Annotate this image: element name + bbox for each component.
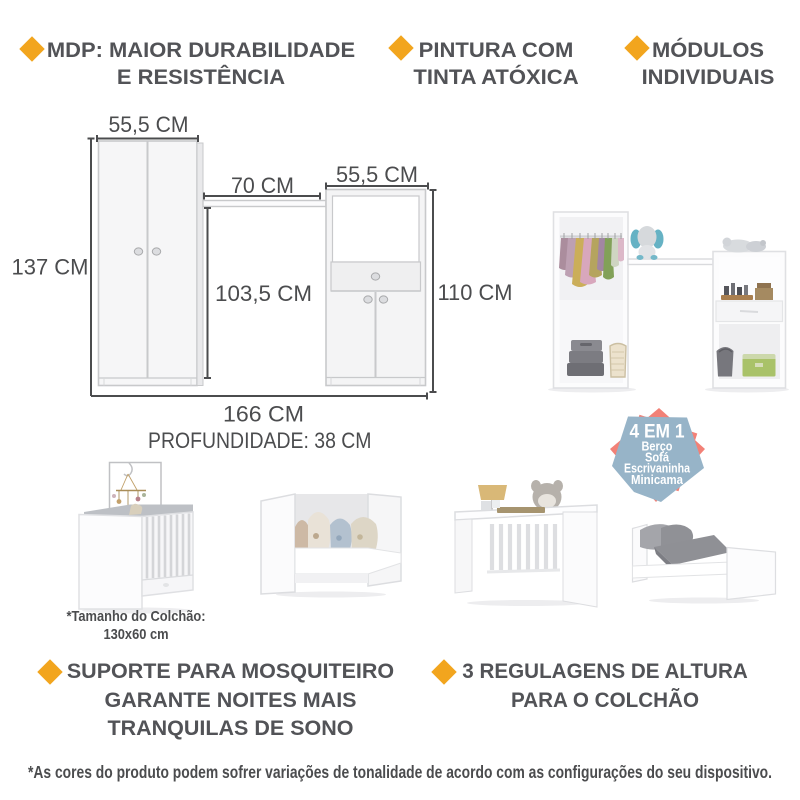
svg-text:PROFUNDIDADE: 38 CM: PROFUNDIDADE: 38 CM: [148, 428, 372, 453]
svg-text:110 CM: 110 CM: [438, 280, 513, 305]
svg-text:Minicama: Minicama: [631, 472, 684, 487]
svg-text:55,5 CM: 55,5 CM: [336, 162, 418, 187]
svg-text:137 CM: 137 CM: [12, 255, 89, 280]
svg-text:103,5 CM: 103,5 CM: [215, 281, 312, 306]
svg-text:166 CM: 166 CM: [223, 402, 304, 427]
svg-text:55,5 CM: 55,5 CM: [109, 112, 189, 137]
svg-text:70 CM: 70 CM: [231, 173, 294, 198]
